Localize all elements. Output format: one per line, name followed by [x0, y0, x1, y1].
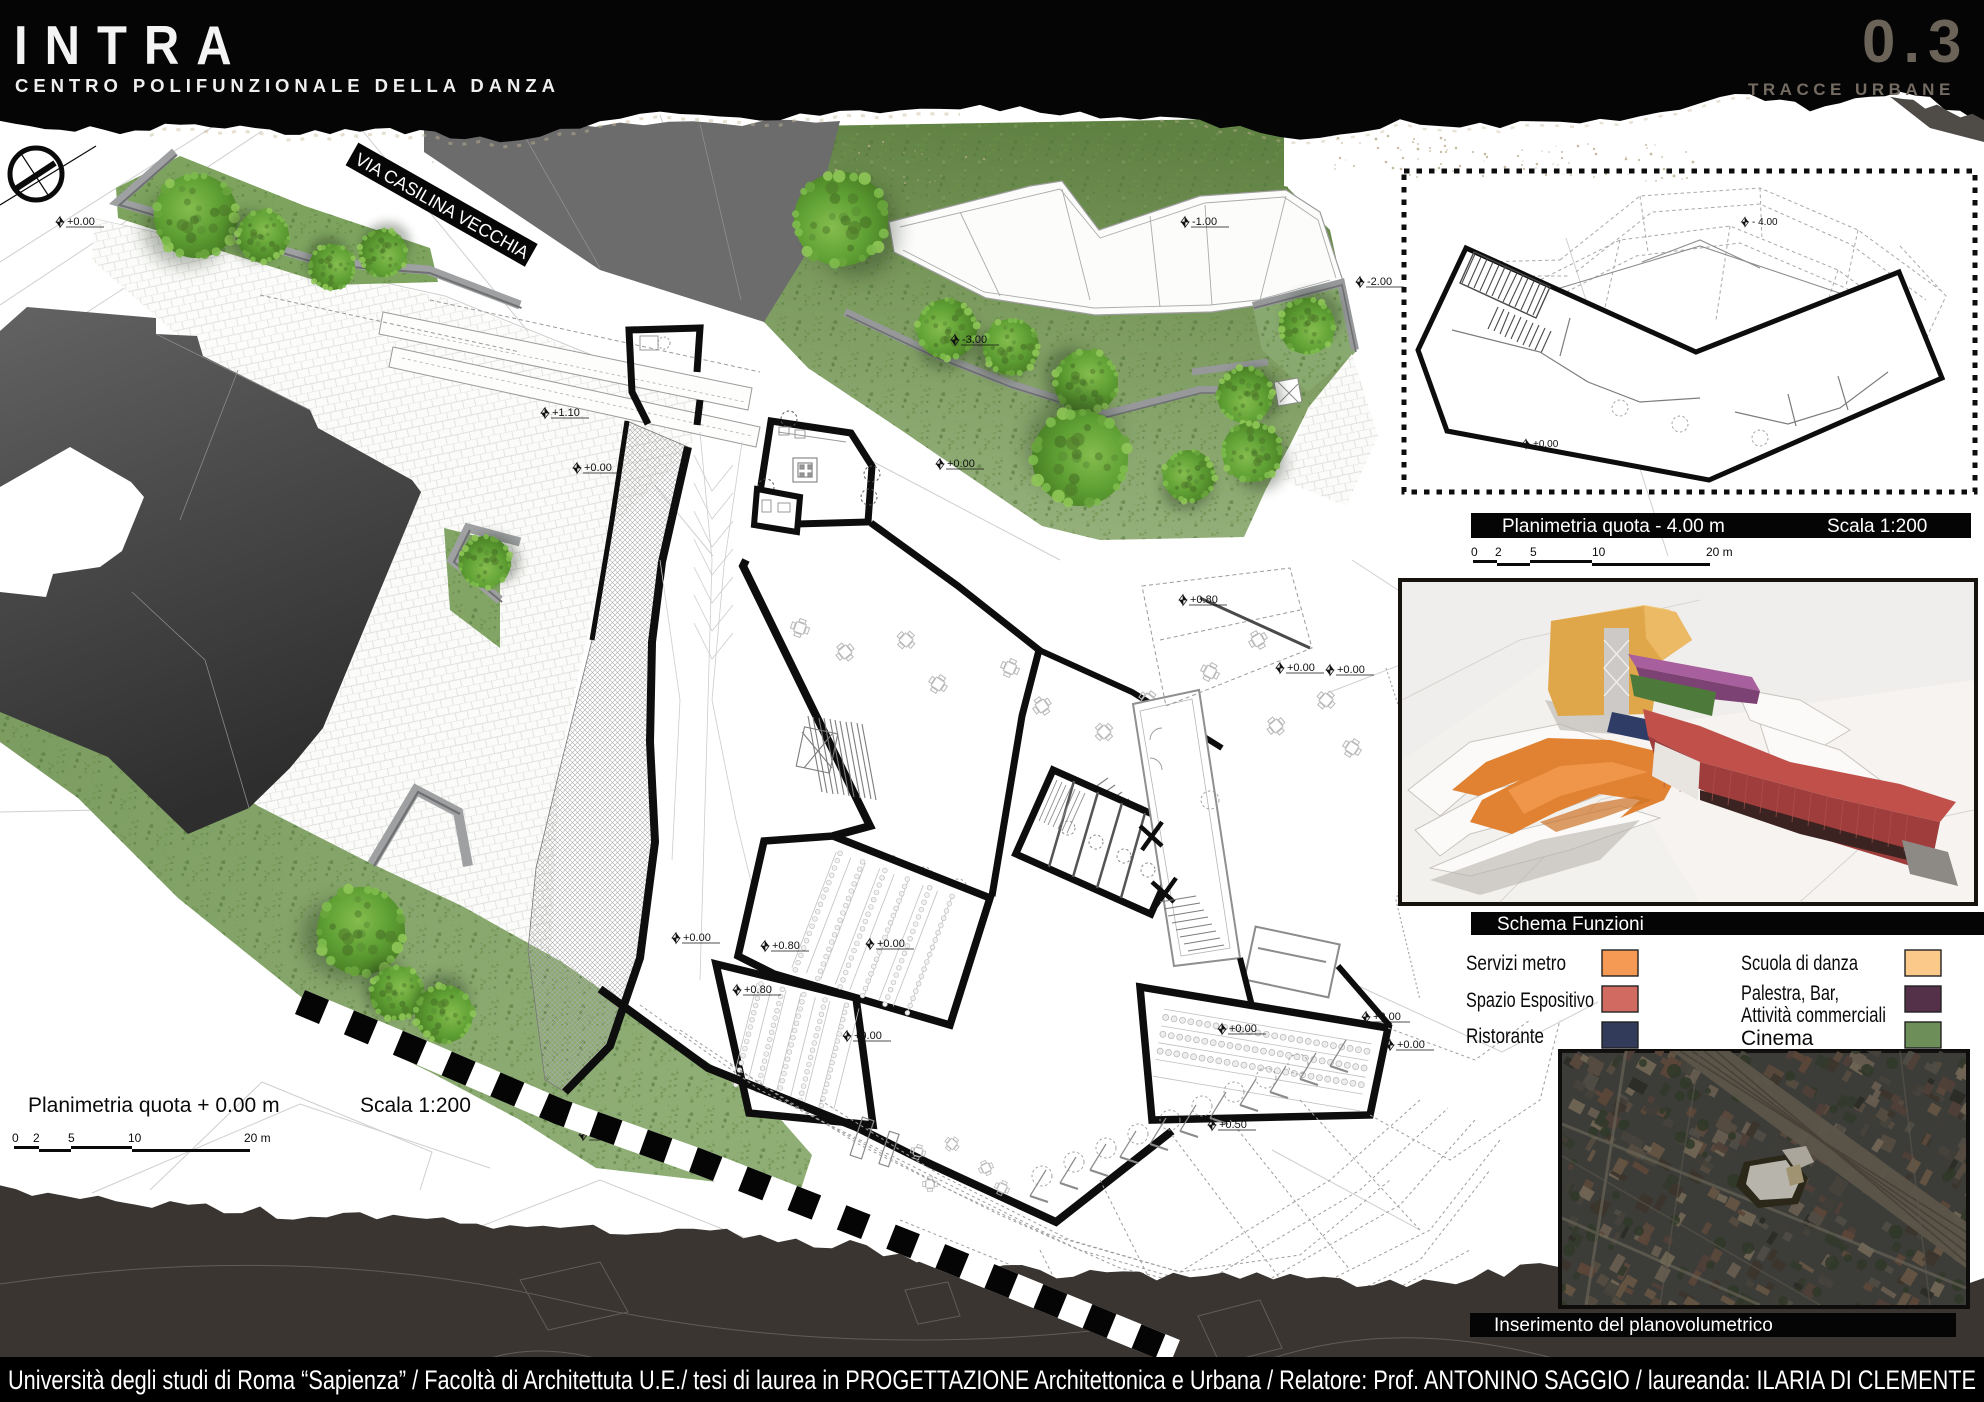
svg-text:0: 0 [12, 1131, 19, 1145]
svg-text:+0.00: +0.00 [1373, 1011, 1401, 1023]
svg-text:5: 5 [68, 1131, 75, 1145]
svg-text:Scala 1:200: Scala 1:200 [1827, 516, 1927, 537]
svg-text:+0.00: +0.00 [947, 458, 975, 470]
svg-text:5: 5 [1530, 545, 1537, 559]
svg-text:Ristorante: Ristorante [1466, 1025, 1544, 1048]
svg-text:CENTRO POLIFUNZIONALE DELLA DA: CENTRO POLIFUNZIONALE DELLA DANZA [15, 75, 555, 96]
svg-text:0: 0 [1471, 545, 1478, 559]
svg-text:10: 10 [128, 1131, 142, 1145]
svg-text:+0.80: +0.80 [772, 940, 800, 952]
svg-text:+0.00: +0.00 [1533, 439, 1559, 450]
svg-text:+1.10: +1.10 [552, 407, 580, 419]
svg-text:Università degli studi di Roma: Università degli studi di Roma “Sapienza… [8, 1365, 1976, 1395]
svg-text:- 4.00: - 4.00 [1752, 217, 1778, 228]
svg-text:INTRA: INTRA [14, 15, 249, 76]
svg-text:+0.00: +0.00 [683, 932, 711, 944]
svg-text:-2.00: -2.00 [1367, 276, 1392, 288]
svg-text:+0.00: +0.00 [67, 216, 95, 228]
svg-text:Planimetria quota + 0.00 m: Planimetria quota + 0.00 m [28, 1094, 280, 1117]
svg-text:20 m: 20 m [1706, 545, 1733, 559]
svg-text:Scala 1:200: Scala 1:200 [360, 1094, 471, 1117]
svg-text:-1.00: -1.00 [1192, 216, 1217, 228]
svg-text:2: 2 [33, 1131, 40, 1145]
svg-text:Schema Funzioni: Schema Funzioni [1497, 914, 1644, 935]
svg-text:+0.80: +0.80 [1190, 594, 1218, 606]
svg-text:Inserimento del planovolumetri: Inserimento del planovolumetrico [1494, 1315, 1773, 1336]
svg-text:+0.00: +0.00 [854, 1030, 882, 1042]
svg-text:0.3: 0.3 [1862, 8, 1969, 75]
svg-text:+0.50: +0.50 [1219, 1119, 1247, 1131]
svg-text:Palestra, Bar,: Palestra, Bar, [1741, 982, 1839, 1005]
svg-text:+0.00: +0.00 [877, 938, 905, 950]
svg-text:Scuola di danza: Scuola di danza [1741, 952, 1858, 975]
svg-text:+0.80: +0.80 [744, 984, 772, 996]
svg-text:Spazio Espositivo: Spazio Espositivo [1466, 989, 1594, 1012]
svg-text:+0.00: +0.00 [1229, 1023, 1257, 1035]
svg-text:+0.00: +0.00 [584, 462, 612, 474]
svg-text:Servizi metro: Servizi metro [1466, 952, 1566, 975]
svg-text:+0.00: +0.00 [1337, 664, 1365, 676]
svg-text:20 m: 20 m [244, 1131, 271, 1145]
svg-text:+0.00: +0.00 [1397, 1039, 1425, 1051]
svg-text:2: 2 [1495, 545, 1502, 559]
svg-text:Attività commerciali: Attività commerciali [1741, 1004, 1886, 1027]
svg-text:+0.00: +0.00 [1287, 662, 1315, 674]
svg-text:Planimetria quota - 4.00 m: Planimetria quota - 4.00 m [1502, 516, 1725, 537]
svg-text:-3.00: -3.00 [962, 334, 987, 346]
svg-text:10: 10 [1592, 545, 1606, 559]
svg-text:Cinema: Cinema [1741, 1027, 1814, 1050]
svg-text:TRACCE URBANE: TRACCE URBANE [1748, 80, 1955, 99]
